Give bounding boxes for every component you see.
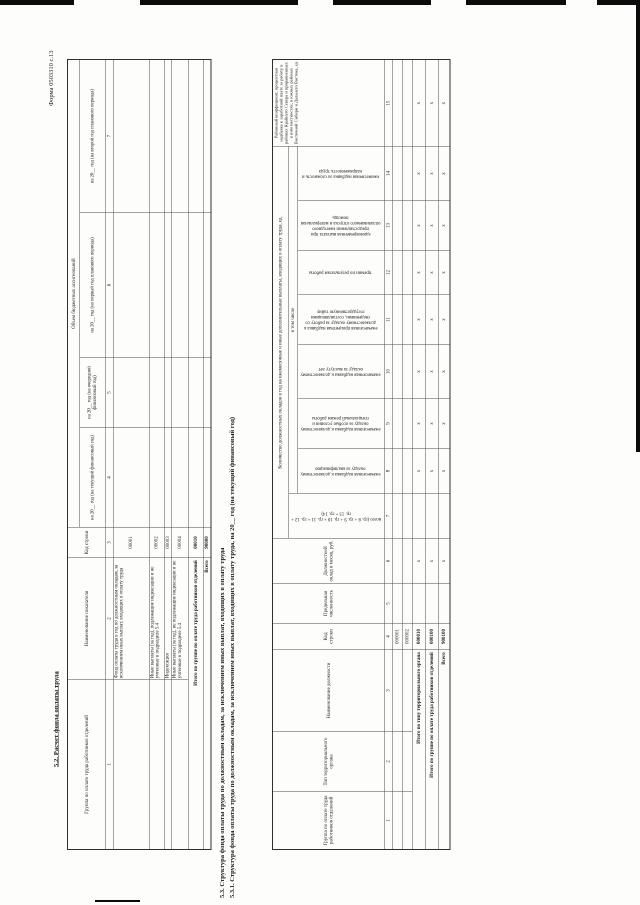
x-mark: x	[425, 449, 438, 494]
t2-total-label: Итого по типу территориального органа	[412, 650, 425, 850]
empty-cell	[425, 584, 438, 624]
empty-cell	[203, 60, 211, 213]
empty-cell	[412, 584, 425, 624]
table-total-row: Итого по группе по оплате труда работник…	[188, 60, 203, 850]
t2-colnum-12: 12	[385, 251, 393, 295]
form-landscape-content: Форма 0503310 с.13 5.2. Расчет фонда опл…	[0, 0, 640, 905]
x-mark: x	[438, 399, 450, 449]
t1-row-name: Иные выплаты (за год), не подлежащие инд…	[171, 558, 188, 680]
scan-artifact-top-bar-1	[0, 0, 74, 5]
empty-cell	[113, 213, 149, 358]
x-mark: x	[412, 147, 425, 201]
t2-colnum-1: 1	[385, 792, 393, 850]
empty-cell	[203, 358, 211, 428]
empty-cell	[113, 680, 149, 850]
t1-total-label: Итого по группе по оплате труда работник…	[188, 558, 203, 850]
table-row: Иные выплаты (за год), подлежащие индекс…	[149, 60, 164, 850]
table-row: Фонд оплаты труда в год по должностным о…	[113, 60, 149, 850]
empty-cell	[164, 680, 171, 850]
t2-col5-header: Предельная численность	[273, 584, 385, 624]
empty-cell	[164, 358, 171, 428]
x-mark: x	[425, 201, 438, 251]
t2-colnum-6: 6	[385, 539, 393, 584]
x-mark: x	[438, 147, 450, 201]
empty-cell	[402, 584, 412, 624]
empty-cell	[438, 494, 450, 539]
empty-cell	[113, 428, 149, 528]
t2-colnum-4: 4	[385, 624, 393, 650]
x-mark: x	[425, 539, 438, 584]
x-mark: x	[412, 345, 425, 399]
empty-cell	[188, 213, 203, 358]
t1-row-code: 00001	[113, 528, 149, 558]
t2-colnum-10: 10	[385, 345, 393, 399]
x-mark: x	[412, 295, 425, 345]
empty-cell	[402, 201, 412, 251]
t1-colnum-7: 7	[106, 60, 114, 213]
table-total-row: Всего 900100 x x x x x x x x x	[438, 60, 450, 850]
empty-cell	[171, 358, 188, 428]
empty-cell	[171, 680, 188, 850]
x-mark: x	[438, 60, 450, 147]
scanned-form-page: Форма 0503310 с.13 5.2. Расчет фонда опл…	[0, 0, 640, 905]
t1-col6-header: на 20__ год (на первый год планового пер…	[80, 213, 106, 358]
empty-cell	[392, 345, 402, 399]
t1-row-name: Иные выплаты (за год), подлежащие индекс…	[149, 558, 164, 680]
table-row: 000002	[402, 60, 412, 850]
t2-colnum-8: 8	[385, 449, 393, 494]
t1-colnum-3: 3	[106, 528, 114, 558]
t2-col7-header: всего (гр. 8 + гр. 9 + гр. 10 + гр. 11 +…	[289, 494, 385, 539]
empty-cell	[188, 358, 203, 428]
empty-cell	[402, 449, 412, 494]
t2-col1-header: Группа по оплате труда работников отделе…	[273, 792, 385, 850]
t2-col11-header: ежемесячная процентная надбавка к должно…	[298, 295, 385, 345]
x-mark: x	[438, 539, 450, 584]
table-row: Иные выплаты (за год), не подлежащие инд…	[171, 60, 188, 850]
x-mark: x	[412, 251, 425, 295]
x-mark: x	[425, 251, 438, 295]
t2-colnum-14: 14	[385, 147, 393, 201]
table-5-3-1: Группа по оплате труда работников отделе…	[272, 59, 451, 850]
empty-cell	[392, 201, 402, 251]
t2-colnum-2: 2	[385, 732, 393, 792]
empty-cell	[402, 399, 412, 449]
t1-col2-header: Наименование показателя	[68, 558, 106, 680]
x-mark: x	[438, 449, 450, 494]
empty-cell	[149, 358, 164, 428]
t2-row-code: 000001	[392, 624, 402, 650]
t1-col7-header: на 20__ год (на второй год планового пер…	[80, 60, 106, 213]
empty-cell	[402, 295, 412, 345]
t1-colnum-1: 1	[106, 680, 114, 850]
t2-colnum-15: 15	[385, 60, 393, 147]
t1-colnum-2: 2	[106, 558, 114, 680]
empty-cell	[402, 251, 412, 295]
t2-colnum-11: 11	[385, 295, 393, 345]
empty-cell	[438, 584, 450, 624]
t2-grand-total-code: 900100	[438, 624, 450, 650]
table-total-row: Всего 90000	[203, 60, 211, 850]
section-5-3-titles: 5.3. Структура фонда оплаты труда по дол…	[217, 417, 237, 898]
t2-col8-header: ежемесячная надбавка к должностному окла…	[298, 449, 385, 494]
t2-group-header: Количество должностных окладов в год на …	[273, 147, 289, 539]
empty-cell	[164, 213, 171, 358]
x-mark: x	[412, 60, 425, 147]
empty-cell	[392, 650, 402, 732]
empty-cell	[149, 60, 164, 213]
empty-cell	[392, 732, 402, 792]
t2-total-code: 000010	[412, 624, 425, 650]
empty-cell	[402, 494, 412, 539]
empty-cell	[203, 428, 211, 528]
form-number-label: Форма 0503310 с.13	[47, 50, 55, 106]
x-mark: x	[438, 295, 450, 345]
t2-col2-header: Тип территориального органа	[273, 732, 385, 792]
empty-cell	[113, 358, 149, 428]
t2-col4-header: Код строки	[273, 624, 385, 650]
t1-row-name: Фонд оплаты труда в год по должностным о…	[113, 558, 149, 680]
t2-col6-header: Должностной оклад в месяц, руб.	[273, 539, 385, 584]
t1-colnum-5: 5	[106, 358, 114, 428]
x-mark: x	[438, 251, 450, 295]
t2-col9-header: ежемесячная надбавка к должностному окла…	[298, 399, 385, 449]
t2-col3-header: Наименование должности	[273, 650, 385, 732]
empty-cell	[392, 494, 402, 539]
empty-cell	[392, 449, 402, 494]
table-total-row: Итого по типу территориального органа 00…	[412, 60, 425, 850]
x-mark: x	[412, 539, 425, 584]
empty-cell	[392, 295, 402, 345]
scan-artifact-right-line	[636, 0, 640, 452]
empty-cell	[402, 539, 412, 584]
empty-cell	[171, 428, 188, 528]
t2-total-label: Итого по группе по оплате труда работник…	[425, 650, 438, 850]
empty-cell	[392, 584, 402, 624]
empty-cell	[188, 428, 203, 528]
table-row: 000001	[392, 60, 402, 850]
t1-row-code: 00004	[171, 528, 188, 558]
empty-cell	[164, 428, 171, 528]
t1-col3-header: Код строки	[68, 528, 106, 558]
t2-colnum-7: 7	[385, 494, 393, 539]
empty-cell	[402, 792, 412, 850]
t1-total-code: 00010	[188, 528, 203, 558]
x-mark: x	[438, 201, 450, 251]
x-mark: x	[412, 399, 425, 449]
empty-cell	[203, 213, 211, 358]
empty-cell	[402, 650, 412, 732]
t1-col4-header: на 20__ год (на текущий финансовый год)	[80, 428, 106, 528]
section-5-3-1-title: 5.3.1. Структура фонда оплаты труда по д…	[227, 417, 237, 898]
empty-cell	[171, 60, 188, 213]
t2-grand-total-label: Всего	[438, 650, 450, 850]
empty-cell	[392, 539, 402, 584]
section-5-3-title: 5.3. Структура фонда оплаты труда по дол…	[217, 417, 227, 898]
empty-cell	[149, 428, 164, 528]
t2-colnum-5: 5	[385, 584, 393, 624]
t1-row-code: 00002	[149, 528, 164, 558]
empty-cell	[402, 60, 412, 147]
scan-artifact-top-bar-5	[597, 0, 640, 5]
empty-cell	[149, 213, 164, 358]
empty-cell	[149, 680, 164, 850]
x-mark: x	[412, 201, 425, 251]
t1-colnum-6: 6	[106, 213, 114, 358]
empty-cell	[412, 494, 425, 539]
scan-artifact-top-bar-3	[333, 0, 431, 5]
empty-cell	[188, 60, 203, 213]
t1-grand-total-code: 90000	[203, 528, 211, 558]
t1-colnum-4: 4	[106, 428, 114, 528]
empty-cell	[392, 60, 402, 147]
x-mark: x	[425, 295, 438, 345]
empty-cell	[392, 251, 402, 295]
t2-row-code: 000002	[402, 624, 412, 650]
table-total-row: Итого по группе по оплате труда работник…	[425, 60, 438, 850]
t1-row-code: 00003	[164, 528, 171, 558]
t2-colnum-13: 13	[385, 201, 393, 251]
t1-row-name: Индексация	[164, 558, 171, 680]
t1-col5-header: на 20__ год (на очередной финансовый год…	[80, 358, 106, 428]
t2-col10-header: ежемесячная надбавка к должностному окла…	[298, 345, 385, 399]
t1-group-header: Объем бюджетных ассигнований	[68, 60, 80, 528]
empty-cell	[392, 399, 402, 449]
x-mark: x	[425, 147, 438, 201]
t2-col13-header: единовременная выплата при предоставлени…	[298, 201, 385, 251]
t1-col1-header: Группа по оплате труда работников отделе…	[68, 680, 106, 850]
t2-subgroup-header: в том числе	[289, 147, 298, 494]
t2-colnum-9: 9	[385, 399, 393, 449]
empty-cell	[113, 60, 149, 213]
empty-cell	[402, 147, 412, 201]
scan-artifact-top-bar-4	[466, 0, 566, 5]
empty-cell	[402, 732, 412, 792]
t1-grand-total-label: Всего	[203, 558, 211, 850]
empty-cell	[425, 494, 438, 539]
section-5-2-title: 5.2. Расчет фонда оплаты труда	[52, 671, 60, 767]
empty-cell	[402, 345, 412, 399]
table-row: Индексация 00003	[164, 60, 171, 850]
t2-col14-header: ежемесячная надбавка за сложность и напр…	[298, 147, 385, 201]
t2-total-code: 000100	[425, 624, 438, 650]
empty-cell	[164, 60, 171, 213]
x-mark: x	[438, 345, 450, 399]
t2-col12-header: премии по результатам работы	[298, 251, 385, 295]
empty-cell	[392, 147, 402, 201]
table-5-2: Группа по оплате труда работников отделе…	[67, 59, 212, 850]
empty-cell	[171, 213, 188, 358]
x-mark: x	[412, 449, 425, 494]
empty-cell	[392, 792, 402, 850]
scan-artifact-top-bar-2	[140, 0, 298, 5]
t2-colnum-3: 3	[385, 650, 393, 732]
x-mark: x	[425, 345, 438, 399]
scan-artifact-bottom-dash	[95, 900, 140, 902]
x-mark: x	[425, 399, 438, 449]
t2-col15-header: Районный коэффициент, процентная надбавк…	[273, 60, 385, 147]
x-mark: x	[425, 60, 438, 147]
